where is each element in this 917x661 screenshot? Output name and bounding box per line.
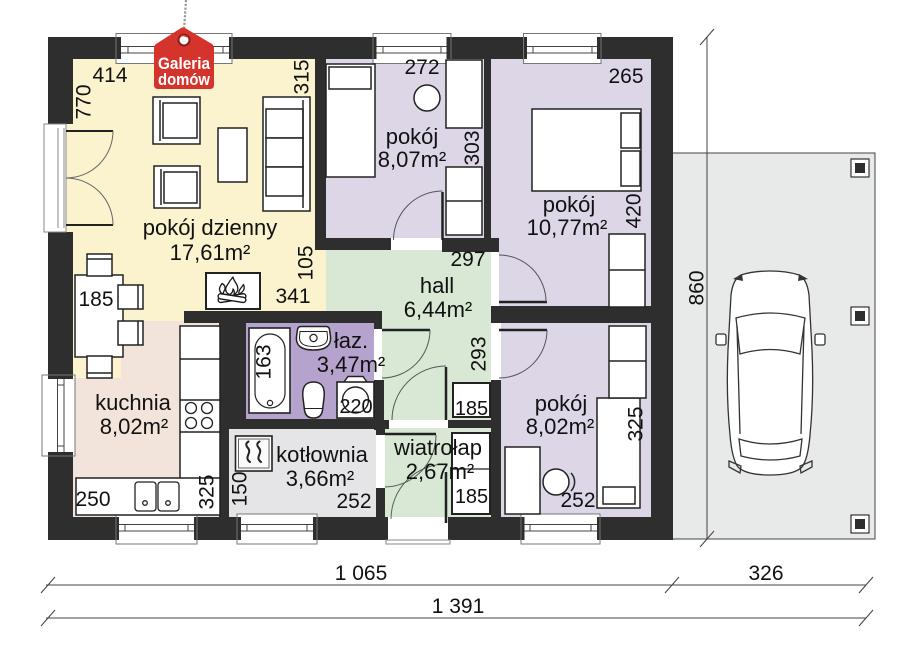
svg-text:łaz.: łaz. xyxy=(334,328,368,353)
svg-text:185: 185 xyxy=(455,398,488,420)
svg-text:293: 293 xyxy=(468,336,491,371)
svg-text:770: 770 xyxy=(73,84,96,119)
svg-text:420: 420 xyxy=(623,193,646,228)
svg-text:250: 250 xyxy=(75,488,110,511)
svg-text:860: 860 xyxy=(686,270,709,305)
svg-text:pokój: pokój xyxy=(386,124,439,149)
svg-text:wiatrołap: wiatrołap xyxy=(393,435,482,460)
svg-text:341: 341 xyxy=(275,285,310,308)
svg-text:265: 265 xyxy=(608,65,643,88)
svg-text:303: 303 xyxy=(461,130,484,165)
svg-text:2,67m²: 2,67m² xyxy=(406,459,474,484)
svg-text:325: 325 xyxy=(196,474,219,509)
svg-text:8,02m²: 8,02m² xyxy=(100,414,168,439)
svg-text:185: 185 xyxy=(455,486,488,508)
svg-text:kotłownia: kotłownia xyxy=(276,442,368,467)
svg-text:185: 185 xyxy=(78,288,113,311)
svg-text:6,44m²: 6,44m² xyxy=(404,297,472,322)
svg-text:hall: hall xyxy=(420,273,454,298)
svg-text:414: 414 xyxy=(92,64,127,87)
svg-text:163: 163 xyxy=(253,344,276,379)
svg-text:252: 252 xyxy=(560,489,595,512)
svg-text:105: 105 xyxy=(295,245,318,280)
svg-text:10,77m²: 10,77m² xyxy=(527,215,608,240)
svg-text:kuchnia: kuchnia xyxy=(95,390,172,415)
svg-text:3,47m²: 3,47m² xyxy=(317,352,385,377)
svg-text:pokój: pokój xyxy=(543,192,596,217)
svg-text:297: 297 xyxy=(450,248,485,271)
svg-text:252: 252 xyxy=(336,490,371,513)
svg-text:220: 220 xyxy=(339,396,372,418)
svg-text:pokój dzienny: pokój dzienny xyxy=(143,215,278,240)
svg-text:17,61m²: 17,61m² xyxy=(170,240,251,265)
svg-text:pokój: pokój xyxy=(535,391,588,416)
svg-text:3,66m²: 3,66m² xyxy=(286,466,354,491)
svg-text:8,02m²: 8,02m² xyxy=(526,414,594,439)
svg-text:325: 325 xyxy=(625,406,648,441)
svg-text:315: 315 xyxy=(291,59,314,94)
svg-text:150: 150 xyxy=(229,471,252,506)
svg-text:1 391: 1 391 xyxy=(432,595,485,618)
svg-text:8,07m²: 8,07m² xyxy=(378,147,446,172)
svg-text:1 065: 1 065 xyxy=(335,562,388,585)
svg-text:272: 272 xyxy=(404,56,439,79)
svg-text:domów: domów xyxy=(158,70,211,89)
svg-text:326: 326 xyxy=(748,562,783,585)
